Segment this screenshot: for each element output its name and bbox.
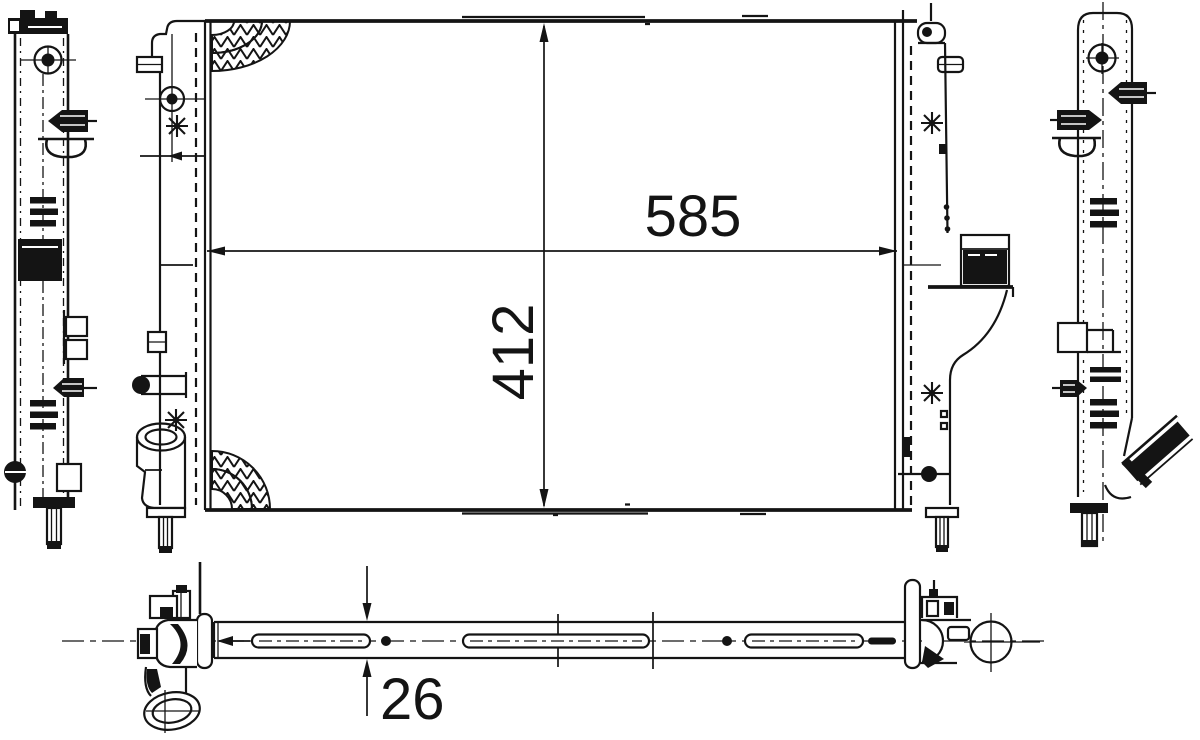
- fin-stack-upper: [30, 197, 58, 227]
- drain-plug-side: [48, 110, 97, 132]
- front-right-tank: [898, 3, 1013, 552]
- outlet-connector: [961, 235, 1009, 286]
- fin-stack-lower: [30, 400, 58, 430]
- front-view: [132, 3, 1013, 553]
- right-fitting-upper: [1108, 82, 1156, 104]
- dim-width-label: 585: [645, 184, 742, 249]
- fin-stack-right-lower: [1090, 399, 1119, 429]
- radiator-technical-drawing: 585 412 26: [0, 0, 1200, 740]
- dim-height-label: 412: [481, 304, 546, 401]
- bottom-right-connector: [905, 580, 1040, 672]
- left-fitting-upper: [1050, 110, 1102, 130]
- front-left-tank: [132, 21, 205, 553]
- corner-hatch-bottom: [212, 451, 270, 509]
- front-core: [196, 10, 917, 515]
- corner-hatch-top: [212, 21, 290, 71]
- bottom-view: [62, 562, 1046, 734]
- dim-core-height: 412: [481, 23, 549, 508]
- right-side-view: [1050, 2, 1197, 547]
- left-tank-plug: [145, 87, 204, 111]
- front-right-pin: [936, 517, 948, 552]
- front-left-pin: [159, 517, 172, 553]
- dim-core-width: 585: [207, 184, 897, 256]
- left-fitting-lower: [1052, 380, 1087, 397]
- diagonal-hose-fitting: [1105, 418, 1197, 499]
- side-fitting-lower: [53, 378, 97, 397]
- fin-stack-right-upper: [1090, 198, 1119, 228]
- core-slots: [252, 635, 896, 648]
- drawing-svg: 585 412 26: [0, 0, 1200, 740]
- left-side-view: [4, 10, 97, 549]
- dim-depth-label: 26: [380, 667, 445, 732]
- filler-cap-right: [1086, 43, 1119, 74]
- right-view-pin: [1082, 513, 1097, 547]
- mounting-pin: [47, 508, 61, 549]
- flow-arrow-bottom: [217, 636, 250, 646]
- bottom-left-connector: [138, 562, 212, 734]
- dim-core-depth: 26: [363, 566, 445, 732]
